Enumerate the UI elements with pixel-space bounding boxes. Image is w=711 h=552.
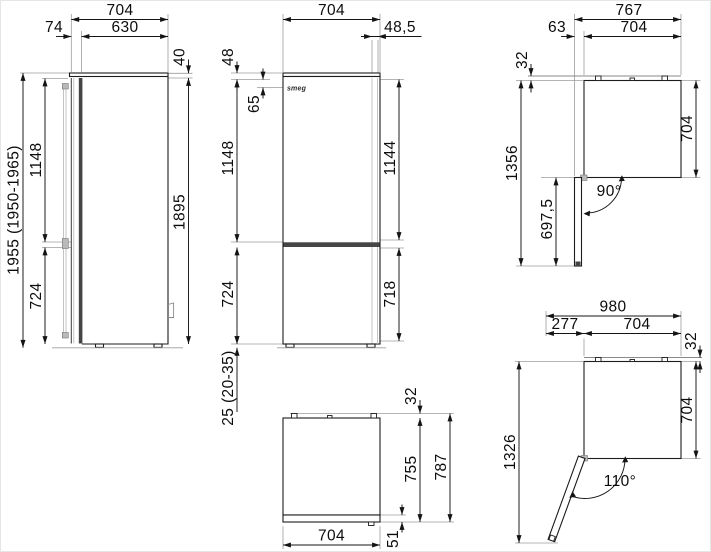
rear-hinge-right [662, 358, 668, 362]
top-cover-panel [70, 73, 169, 77]
dim-top90-door-length: 697,5 [539, 178, 556, 267]
rear-bump [630, 78, 635, 81]
dim-front-lower-right: 718 [382, 248, 399, 341]
dim-side-overall-height: 1955 (1950-1965) [6, 73, 24, 348]
dim-label: 51 [385, 530, 402, 548]
dim-label: 704 [106, 2, 133, 19]
front-view: smeg 704 48,5 48 65 1148 [220, 2, 422, 426]
dim-top90-angle: 90° [584, 175, 625, 216]
rear-hinge-left [596, 76, 602, 81]
dim-label: 48,5 [384, 19, 416, 36]
dim-label: 704 [679, 115, 696, 142]
dim-label: 65 [246, 95, 263, 113]
dim-label: 724 [28, 282, 45, 309]
dim-label: 704 [620, 19, 647, 36]
top-view-closed: 32 755 787 704 51 [283, 387, 454, 549]
dim-label: 1148 [220, 141, 237, 176]
door-slab [79, 78, 83, 344]
side-view-extension-lines [20, 14, 193, 248]
rear-hinge-right [371, 414, 377, 419]
cabinet-body [283, 418, 380, 515]
dim-front-width: 704 [283, 2, 380, 20]
dim-label: 25 (20-35) [220, 350, 237, 426]
dim-topclosed-door-thickness: 51 [385, 505, 402, 549]
right-foot [367, 344, 375, 347]
left-foot [286, 344, 294, 347]
door-closed [283, 515, 380, 522]
dim-label: 704 [623, 316, 650, 333]
top110-cabinet [548, 358, 681, 542]
door-split-band [284, 242, 380, 247]
dim-top110-width: 704 [584, 316, 681, 334]
dim-top110-rear-gap: 32 [683, 332, 700, 373]
dim-label: 724 [220, 280, 237, 307]
dim-side-top-cover: 40 [172, 48, 189, 73]
dim-front-logo-offset: 65 [246, 69, 263, 114]
dim-top110-door-swing: 277 [546, 316, 584, 334]
dim-label: 704 [318, 2, 345, 19]
brand-logo: smeg [287, 86, 307, 93]
dim-label: 48 [220, 48, 237, 66]
dim-label: 1955 (1950-1965) [6, 145, 23, 275]
dim-label: 40 [172, 48, 189, 66]
handle-mount-bottom [62, 333, 68, 339]
dim-label: 767 [615, 2, 642, 19]
dim-label: 1148 [28, 143, 45, 178]
front-view-cabinet: smeg [277, 73, 386, 348]
handle-mount-middle [62, 239, 68, 249]
dim-front-upper-right: 1144 [382, 80, 399, 241]
top-view-door-110: 980 277 704 32 704 1326 110° [502, 299, 702, 544]
rear-roller [154, 344, 162, 347]
dim-label: 704 [318, 528, 345, 545]
dim-top90-door-offset: 63 [548, 19, 575, 37]
top-view-door-90: 767 63 704 32 1356 697,5 704 [504, 2, 701, 266]
dim-front-side-panel: 48,5 [361, 19, 422, 37]
dim-label: 787 [433, 453, 450, 480]
rear-hinge-left [596, 358, 602, 362]
dim-top90-rear-gap: 32 [514, 51, 531, 93]
handle-mount-top [62, 84, 68, 90]
dimension-drawing: 704 630 74 40 1895 1955 (1950-1965) 1148 [0, 0, 711, 552]
dim-side-upper-section: 1148 [28, 79, 45, 243]
dim-top90-total-width: 767 [575, 2, 682, 20]
dim-top110-depth-open: 1326 [502, 362, 519, 544]
dim-top110-total-width: 980 [546, 299, 681, 317]
dim-label: 32 [403, 387, 420, 405]
door-foot [576, 262, 581, 267]
dim-label: 704 [679, 396, 696, 423]
dim-label: 110° [604, 473, 637, 490]
dim-label: 277 [551, 316, 578, 333]
door-foot [549, 535, 555, 541]
dim-side-cabinet-depth: 630 [82, 19, 169, 37]
dim-front-upper-left: 1148 [220, 80, 237, 243]
dim-top90-depth-open: 1356 [504, 81, 521, 267]
top90-cabinet [575, 76, 682, 266]
rear-bump [630, 360, 635, 362]
dim-label: 718 [382, 280, 399, 307]
dim-label: 1144 [382, 141, 399, 176]
dim-label: 630 [111, 19, 138, 36]
dim-top90-width: 704 [584, 19, 681, 37]
dim-label: 1895 [172, 194, 189, 230]
door-open-90 [575, 178, 582, 267]
front-foot [96, 344, 104, 347]
dim-label: 980 [599, 299, 626, 316]
dim-front-top-offset: 48 [220, 48, 237, 91]
dim-topclosed-depth-with-door: 755 [403, 418, 420, 522]
cabinet-body [584, 362, 681, 459]
side-view: 704 630 74 40 1895 1955 (1950-1965) 1148 [6, 2, 193, 348]
dim-label: 755 [403, 455, 420, 482]
dim-label: 32 [514, 51, 531, 69]
dim-label: 1356 [504, 145, 521, 181]
dim-side-total-depth: 704 [71, 2, 168, 20]
dim-label: 90° [597, 183, 622, 200]
dim-topclosed-total-depth: 787 [433, 414, 450, 523]
side-view-cabinet [52, 73, 183, 348]
dim-label: 63 [548, 19, 566, 36]
cabinet-body [584, 81, 681, 178]
rear-bump [328, 416, 333, 419]
dim-topclosed-width: 704 [283, 528, 380, 546]
rear-hinge-left [292, 414, 298, 419]
dim-side-lower-section: 724 [28, 248, 45, 345]
front-roller [369, 522, 375, 526]
cabinet-body [283, 77, 380, 345]
rear-spacer-bracket [168, 303, 174, 318]
dim-front-feet-height: 25 (20-35) [220, 332, 237, 426]
door-open-110 [548, 456, 585, 542]
topclosed-cabinet [283, 414, 380, 526]
dim-side-door-depth: 74 [45, 19, 71, 37]
rear-hinge-right [662, 76, 668, 81]
dim-label: 697,5 [539, 199, 556, 240]
dim-label: 1326 [502, 434, 519, 470]
dim-label: 74 [45, 19, 63, 36]
dim-topclosed-rear-gap: 32 [403, 387, 420, 414]
dim-front-lower-left: 724 [220, 248, 237, 345]
dim-label: 32 [683, 332, 700, 350]
